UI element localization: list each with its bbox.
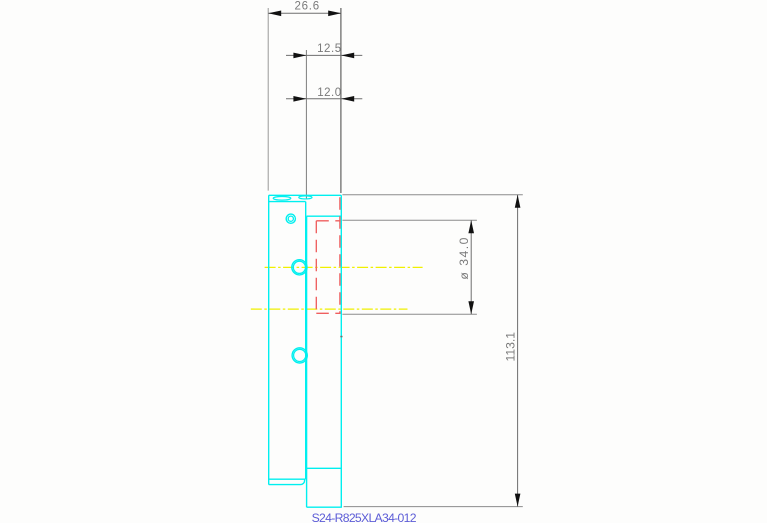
svg-text:12.0: 12.0 xyxy=(317,87,341,99)
svg-text:12.5: 12.5 xyxy=(317,43,341,55)
svg-text:ø 34.0: ø 34.0 xyxy=(457,237,471,279)
svg-text:S24-R825XLA34-012: S24-R825XLA34-012 xyxy=(312,511,417,523)
svg-text:113.1: 113.1 xyxy=(504,332,518,362)
svg-text:26.6: 26.6 xyxy=(295,1,320,13)
